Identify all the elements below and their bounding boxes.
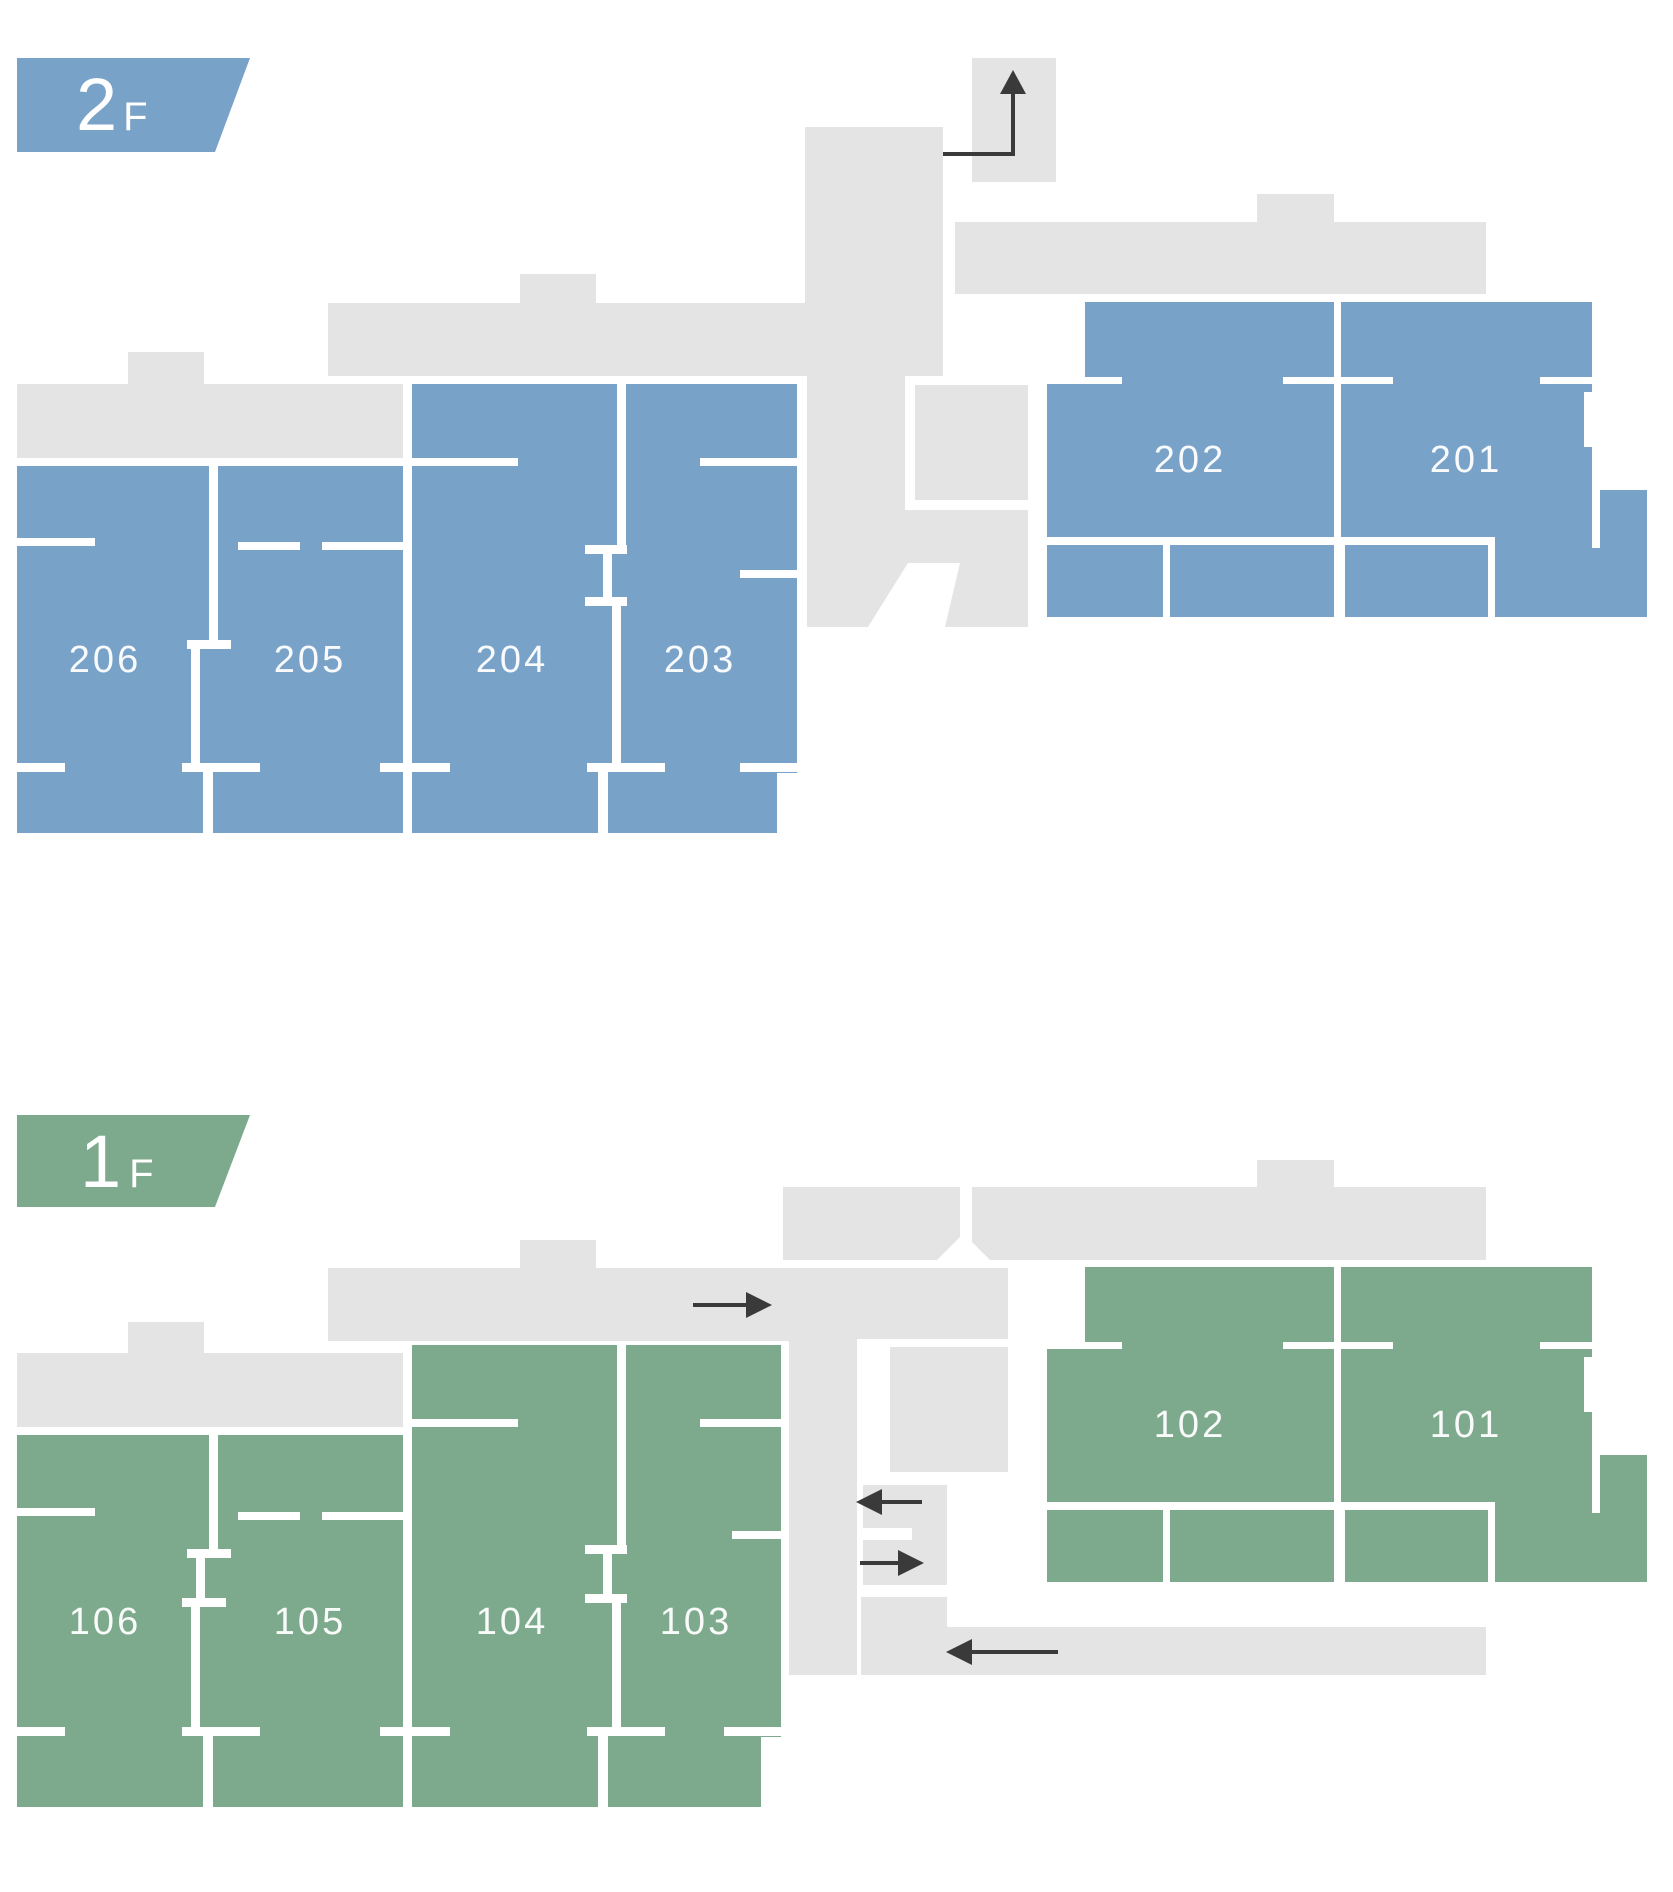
wall-segment [380, 763, 450, 772]
wall-segment [1283, 377, 1393, 384]
elevator-shaft [915, 385, 1028, 500]
wall-segment [1592, 1455, 1600, 1513]
wall-segment [1085, 377, 1122, 384]
wall-segment [209, 466, 218, 645]
wall-segment [1334, 545, 1345, 617]
wall-segment [1163, 545, 1170, 617]
room-202-upper [1085, 302, 1334, 384]
corridor-area [972, 1187, 1486, 1260]
wall-segment [1085, 1342, 1122, 1349]
wall-segment [700, 1419, 781, 1427]
room-label-204: 204 [476, 639, 548, 681]
wall-segment [908, 500, 1028, 510]
wall-segment [238, 1512, 300, 1520]
wall-segment [191, 649, 200, 766]
wall-segment [17, 1508, 95, 1516]
wall-segment [182, 1598, 226, 1607]
wall-segment [1488, 545, 1495, 617]
wall-segment [1047, 1502, 1495, 1510]
wall-segment [781, 1345, 789, 1736]
corridor-bump [1257, 1160, 1334, 1187]
entrance-block [783, 1187, 960, 1260]
room-label-101: 101 [1430, 1404, 1502, 1446]
wall-segment [412, 458, 518, 466]
room-102-main [1047, 1349, 1334, 1582]
wall-segment [17, 1727, 65, 1736]
wall-segment [191, 1607, 200, 1736]
wall-segment [17, 538, 95, 546]
floor-plan-page: 2F [0, 0, 1673, 1887]
wall-segment [322, 542, 403, 550]
corridor-bump [1257, 194, 1334, 222]
wall-segment [585, 597, 627, 606]
wall-segment [1163, 1510, 1170, 1582]
wall-segment [761, 1737, 781, 1807]
room-201-annex [1600, 490, 1647, 617]
wall-segment [612, 1603, 621, 1736]
wall-segment [1047, 537, 1495, 545]
wall-segment [1283, 1342, 1393, 1349]
wall-segment [203, 1736, 213, 1807]
floor-1f-rooms-right [1047, 1267, 1647, 1582]
corridor-bump [128, 352, 204, 384]
wall-segment [17, 763, 65, 772]
corridor-area [17, 1353, 403, 1427]
wall-segment [905, 376, 1028, 385]
corridor-bump [520, 1240, 596, 1268]
wall-segment [797, 384, 807, 772]
wall-segment [1584, 1357, 1592, 1412]
room-label-201: 201 [1430, 439, 1502, 481]
wall-segment [1334, 1510, 1345, 1582]
room-104-103-block [412, 1345, 781, 1807]
wall-segment [598, 772, 608, 833]
lower-corridor [861, 1597, 1486, 1675]
wall-segment [598, 1736, 608, 1807]
room-label-205: 205 [274, 639, 346, 681]
wall-segment [617, 1345, 626, 1549]
wall-segment [617, 384, 626, 549]
wall-segment [905, 376, 915, 510]
room-label-202: 202 [1154, 439, 1226, 481]
room-label-105: 105 [274, 1601, 346, 1643]
wall-segment [203, 772, 213, 833]
room-label-206: 206 [69, 639, 141, 681]
corridor-area [328, 303, 943, 376]
corridor-bump [128, 1322, 204, 1353]
wall-segment [732, 1531, 781, 1539]
wall-segment [182, 1727, 260, 1736]
room-201-annex [1592, 548, 1600, 617]
wall-segment [603, 1554, 612, 1598]
wall-segment [585, 545, 627, 554]
corridor-bump [520, 274, 596, 303]
room-label-203: 203 [664, 639, 736, 681]
wall-segment [1540, 377, 1592, 384]
room-101-annex [1600, 1455, 1647, 1582]
wall-segment [187, 1549, 231, 1558]
wall-segment [587, 1727, 665, 1736]
floor-2f-badge: 2F [17, 58, 250, 152]
elevator-shaft [890, 1347, 1008, 1472]
corridor-area [17, 384, 403, 458]
wall-segment [322, 1512, 403, 1520]
wall-segment [587, 763, 665, 772]
room-label-103: 103 [660, 1601, 732, 1643]
wall-segment [740, 570, 797, 578]
wall-segment [1540, 1342, 1592, 1349]
corridor-area [328, 1268, 1008, 1341]
wall-segment [724, 1727, 781, 1736]
room-label-106: 106 [69, 1601, 141, 1643]
wall-segment [1584, 392, 1592, 447]
wall-segment [182, 763, 260, 772]
room-label-102: 102 [1154, 1404, 1226, 1446]
wall-segment [740, 763, 797, 772]
floor-plan-canvas: 2F [0, 0, 1673, 1887]
room-label-104: 104 [476, 1601, 548, 1643]
wall-segment [612, 606, 621, 766]
corridor-area [789, 1341, 857, 1675]
room-202-main [1047, 384, 1334, 617]
wall-segment [777, 773, 797, 833]
wall-segment [238, 542, 300, 550]
wall-segment [412, 1419, 518, 1427]
room-102-upper [1085, 1267, 1334, 1349]
corridor-area [805, 127, 943, 303]
wall-segment [209, 1435, 218, 1553]
wall-segment [1334, 1267, 1341, 1502]
wall-segment [603, 554, 612, 601]
wall-segment [585, 1594, 627, 1603]
floor-2f-plan: 2F [17, 58, 1647, 833]
wall-segment [1592, 490, 1600, 548]
entry-threshold [863, 1528, 912, 1540]
wall-segment [700, 458, 797, 466]
wall-segment [585, 1545, 627, 1554]
wall-segment [1334, 302, 1341, 537]
wall-segment [196, 1558, 205, 1602]
wall-segment [187, 640, 231, 649]
floor-1f-badge: 1F [17, 1115, 250, 1207]
wall-segment [380, 1727, 450, 1736]
floor-2f-rooms-right [1047, 302, 1647, 617]
room-101-annex [1592, 1513, 1600, 1582]
wall-segment [1488, 1510, 1495, 1582]
corridor-area [955, 222, 1486, 294]
floor-1f-plan: 1F [17, 1115, 1647, 1807]
